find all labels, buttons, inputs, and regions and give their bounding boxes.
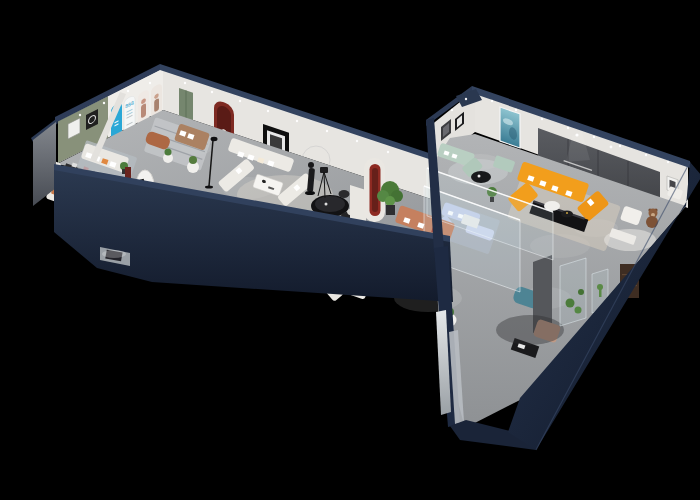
black-round-coffee-table xyxy=(471,171,491,183)
table-decor xyxy=(325,203,328,206)
dark-rug xyxy=(496,315,564,345)
floor-lamp-base xyxy=(205,186,213,189)
tray-decor xyxy=(566,212,568,214)
dining-table-top xyxy=(315,196,345,212)
floor-lamp-head xyxy=(211,137,218,141)
isometric-scene: 888 xyxy=(0,0,700,500)
plant xyxy=(165,149,172,156)
plant-2 xyxy=(189,156,197,164)
glass-plant-case-1 xyxy=(560,258,586,326)
showroom-render: 888 xyxy=(0,0,700,500)
table-decor xyxy=(478,175,481,178)
teal-abstract-painting xyxy=(500,107,520,148)
